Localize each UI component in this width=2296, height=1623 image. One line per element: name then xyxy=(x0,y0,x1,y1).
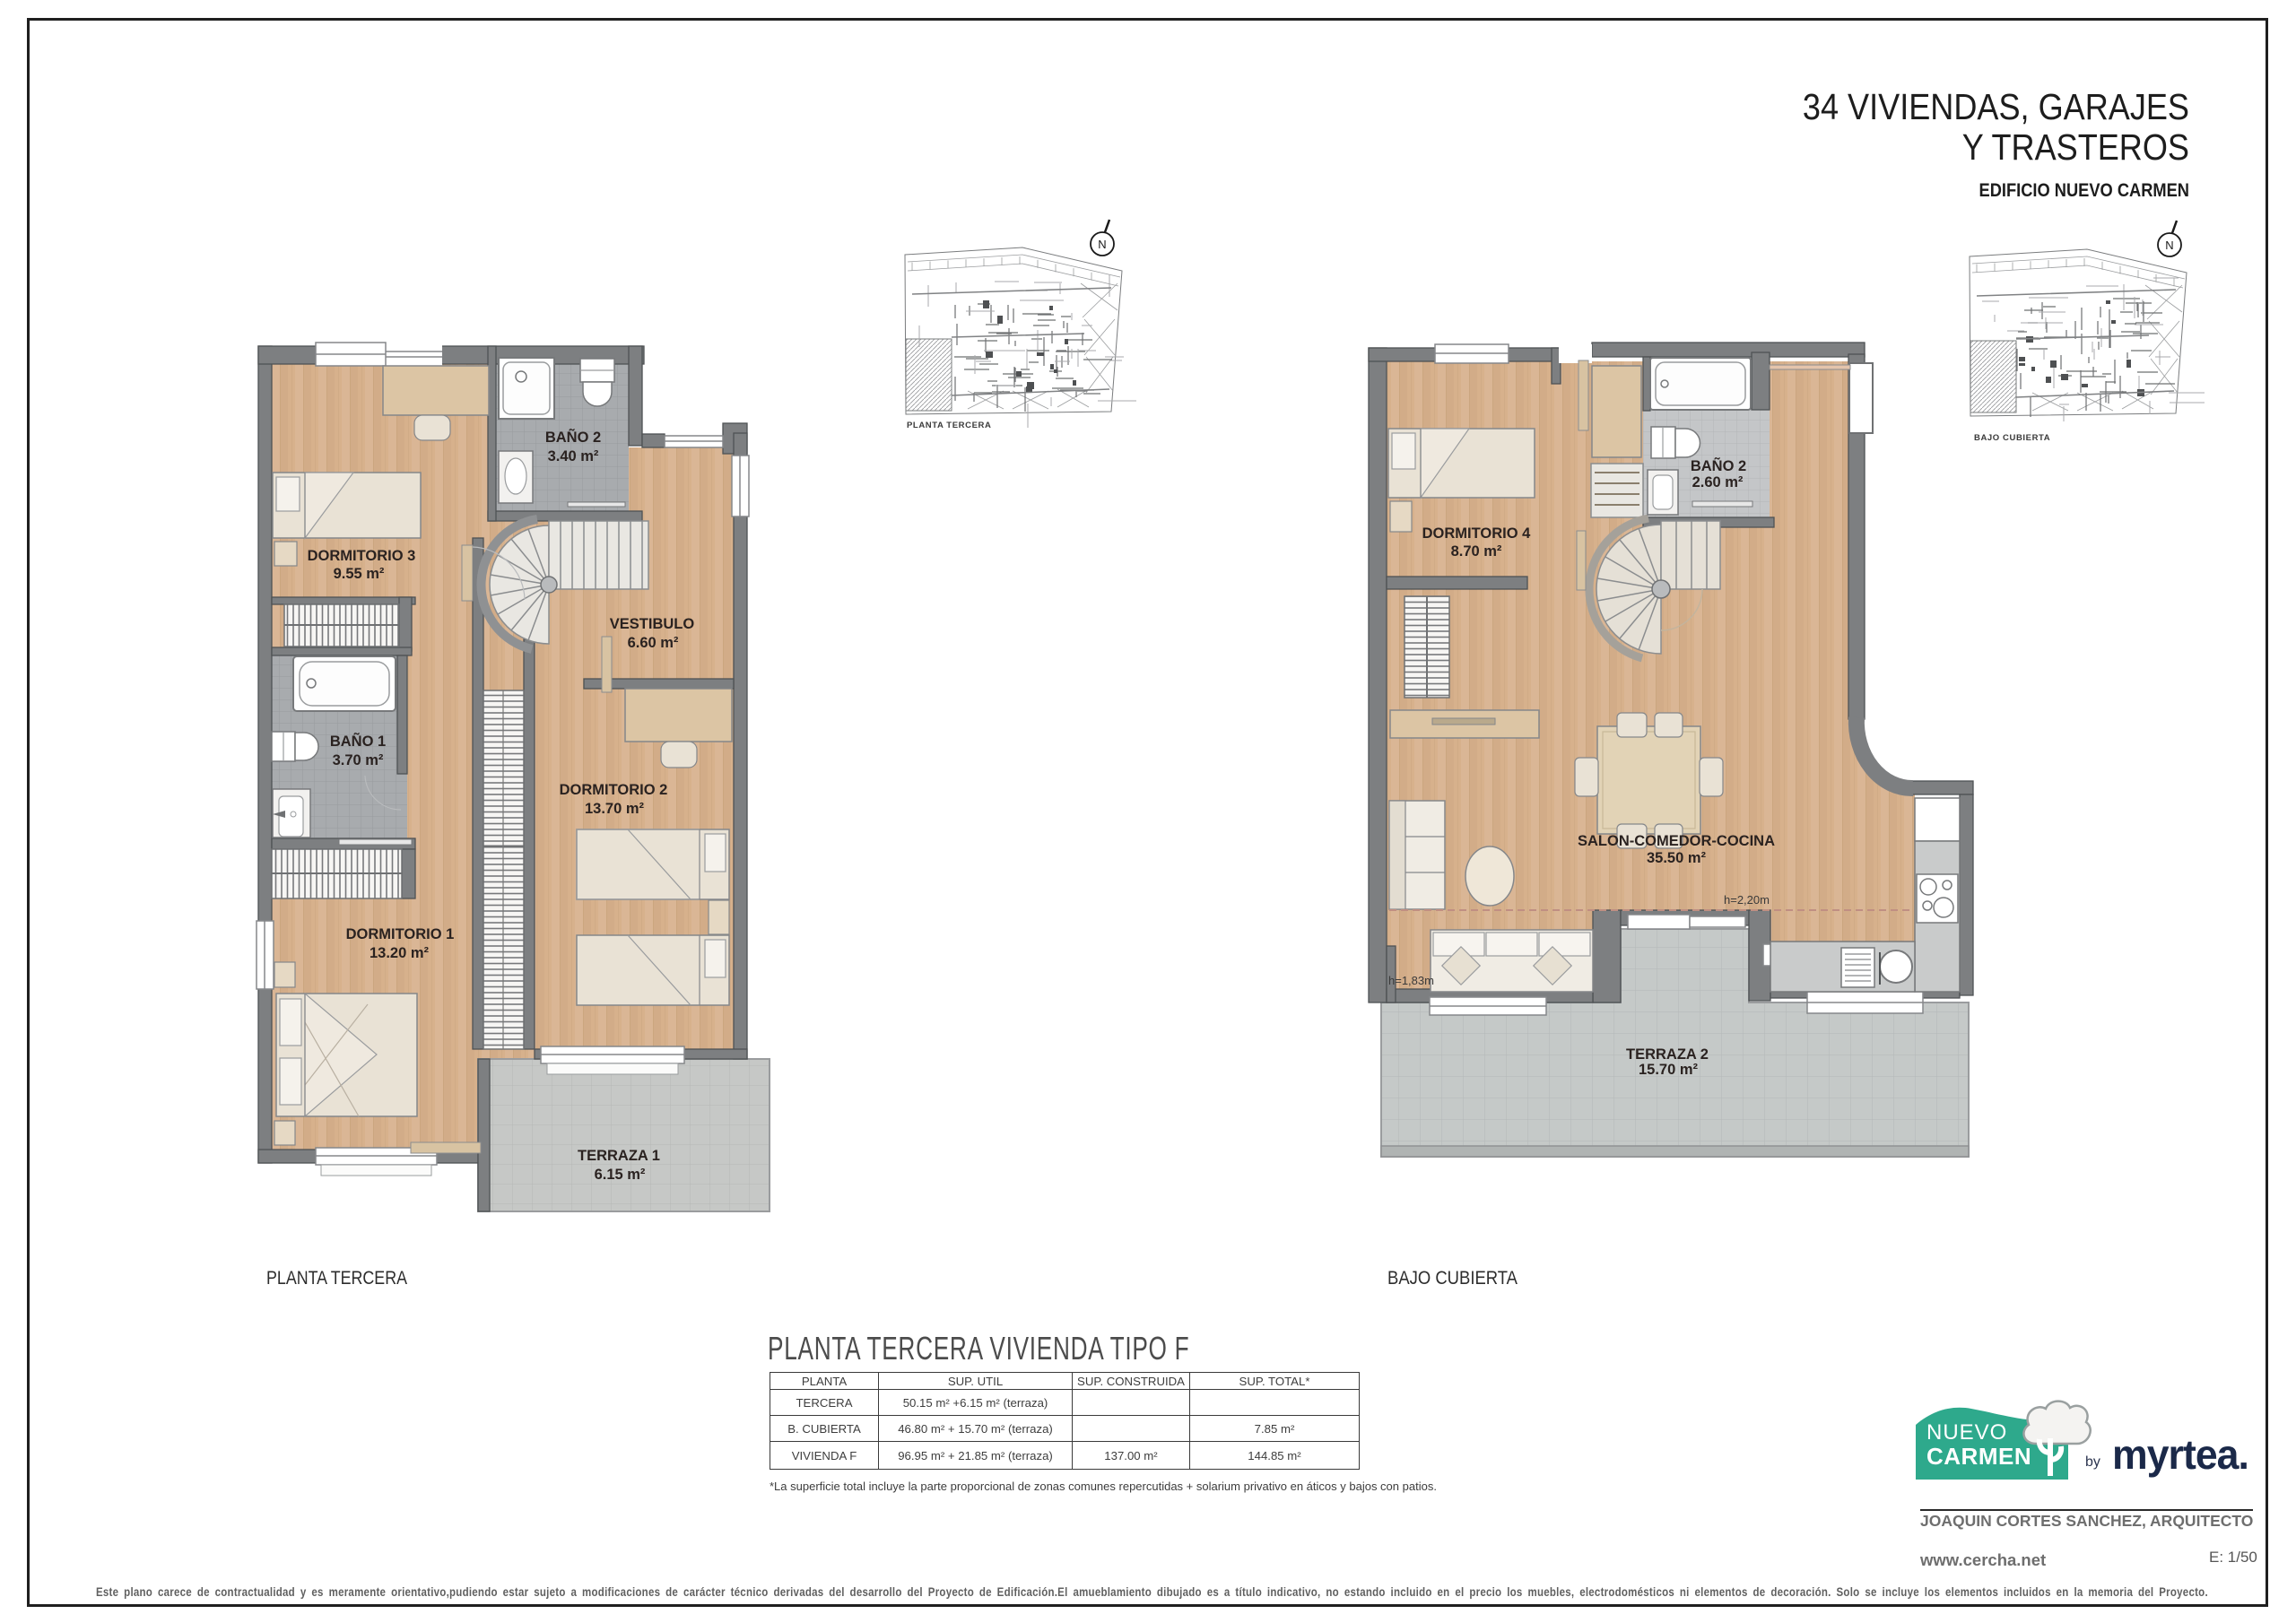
svg-text:15.70 m²: 15.70 m² xyxy=(1639,1062,1699,1078)
svg-text:N: N xyxy=(2165,239,2173,252)
svg-text:3.40 m²: 3.40 m² xyxy=(548,448,599,464)
svg-text:h=2,20m: h=2,20m xyxy=(1724,893,1770,907)
svg-text:PLANTA TERCERA: PLANTA TERCERA xyxy=(907,421,991,430)
svg-text:13.20 m²: 13.20 m² xyxy=(370,945,430,961)
svg-text:3.70 m²: 3.70 m² xyxy=(333,752,384,768)
svg-text:35.50 m²: 35.50 m² xyxy=(1647,850,1707,866)
svg-text:TERRAZA 1: TERRAZA 1 xyxy=(578,1148,660,1164)
svg-text:TERRAZA 2: TERRAZA 2 xyxy=(1626,1046,1709,1063)
svg-text:6.60 m²: 6.60 m² xyxy=(628,635,679,651)
svg-text:VESTIBULO: VESTIBULO xyxy=(610,616,695,632)
svg-text:BAÑO 1: BAÑO 1 xyxy=(330,732,386,750)
svg-text:DORMITORIO 3: DORMITORIO 3 xyxy=(308,548,416,564)
svg-text:BAÑO 2: BAÑO 2 xyxy=(545,428,601,446)
svg-text:9.55 m²: 9.55 m² xyxy=(334,566,385,582)
svg-text:NUEVO: NUEVO xyxy=(1926,1420,2007,1445)
svg-text:BAJO CUBIERTA: BAJO CUBIERTA xyxy=(1974,433,2050,443)
svg-text:SALON-COMEDOR-COCINA: SALON-COMEDOR-COCINA xyxy=(1578,833,1775,849)
svg-text:DORMITORIO 1: DORMITORIO 1 xyxy=(346,926,455,942)
svg-text:6.15 m²: 6.15 m² xyxy=(595,1167,646,1183)
svg-text:2.60 m²: 2.60 m² xyxy=(1692,474,1744,490)
svg-text:DORMITORIO 4: DORMITORIO 4 xyxy=(1422,525,1532,542)
svg-text:BAÑO 2: BAÑO 2 xyxy=(1691,456,1746,474)
svg-text:8.70 m²: 8.70 m² xyxy=(1451,543,1502,560)
svg-text:BAJO CUBIERTA: BAJO CUBIERTA xyxy=(1387,1268,1518,1289)
svg-text:h=1,83m: h=1,83m xyxy=(1388,974,1434,987)
svg-text:13.70 m²: 13.70 m² xyxy=(585,801,645,817)
svg-text:PLANTA TERCERA: PLANTA TERCERA xyxy=(266,1268,407,1289)
svg-text:DORMITORIO 2: DORMITORIO 2 xyxy=(560,782,668,798)
svg-text:N: N xyxy=(1098,238,1106,251)
